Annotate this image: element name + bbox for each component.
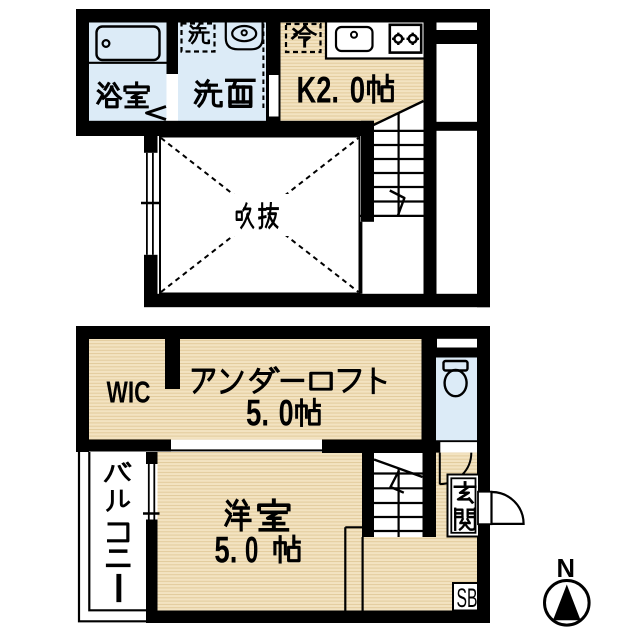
svg-text:0: 0 <box>350 70 365 111</box>
svg-text:K2.: K2. <box>297 70 340 111</box>
svg-text:5.: 5. <box>214 530 237 571</box>
svg-text:0: 0 <box>245 530 259 571</box>
svg-text:SB: SB <box>457 583 478 613</box>
svg-text:5.: 5. <box>246 392 269 433</box>
svg-text:WIC: WIC <box>107 375 151 410</box>
svg-text:N: N <box>557 553 576 583</box>
svg-text:0: 0 <box>279 392 294 433</box>
